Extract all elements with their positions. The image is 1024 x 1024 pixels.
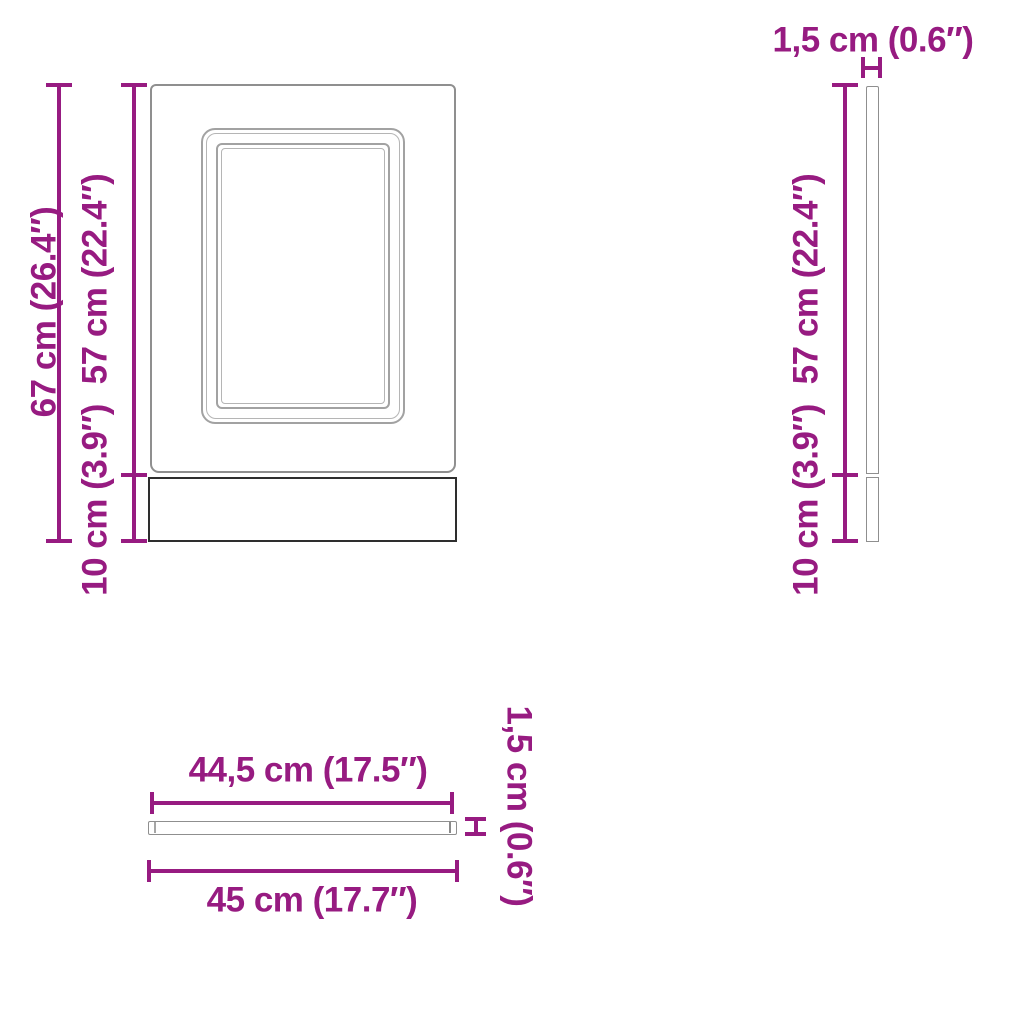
front-plinth-height-label: 10 cm (3.9″) (78, 404, 113, 596)
top-total-width-line (149, 869, 458, 873)
top-inner-width-tick-left (150, 792, 154, 814)
side-height-tick-mid (832, 473, 858, 477)
side-door-height-label: 57 cm (22.4″) (789, 174, 824, 385)
side-door-panel (866, 86, 879, 474)
top-thickness-label: 1,5 cm (0.6″) (502, 706, 537, 907)
top-inner-width-label: 44,5 cm (17.5″) (189, 753, 428, 788)
side-thickness-label: 1,5 cm (0.6″) (773, 23, 974, 58)
front-door-height-tick-mid (121, 473, 147, 477)
top-total-width-tick-right (455, 860, 459, 882)
top-total-width-tick-left (147, 860, 151, 882)
front-total-height-label: 67 cm (26.4″) (27, 207, 62, 418)
side-thickness-bracket-bar (861, 66, 882, 70)
side-height-tick-top (832, 83, 858, 87)
front-plinth-panel (148, 477, 457, 542)
front-door-height-tick-bottom (121, 539, 147, 543)
side-height-tick-bottom (832, 539, 858, 543)
top-panel-left-endcap (154, 822, 156, 833)
top-panel (148, 821, 457, 835)
front-door-height-tick-top (121, 83, 147, 87)
top-inner-width-line (152, 801, 453, 805)
front-total-height-tick-top (46, 83, 72, 87)
side-plinth-height-label: 10 cm (3.9″) (789, 404, 824, 596)
side-plinth-panel (866, 477, 879, 542)
top-thickness-bracket-connector (474, 817, 478, 836)
product-dimension-diagram: 67 cm (26.4″) 57 cm (22.4″) 10 cm (3.9″)… (0, 0, 1024, 1024)
top-panel-right-endcap (449, 822, 451, 833)
front-total-height-tick-bottom (46, 539, 72, 543)
top-total-width-label: 45 cm (17.7″) (207, 883, 418, 918)
top-inner-width-tick-right (450, 792, 454, 814)
door-frame-panel-inner-line (221, 148, 385, 404)
front-door-height-label: 57 cm (22.4″) (78, 174, 113, 385)
